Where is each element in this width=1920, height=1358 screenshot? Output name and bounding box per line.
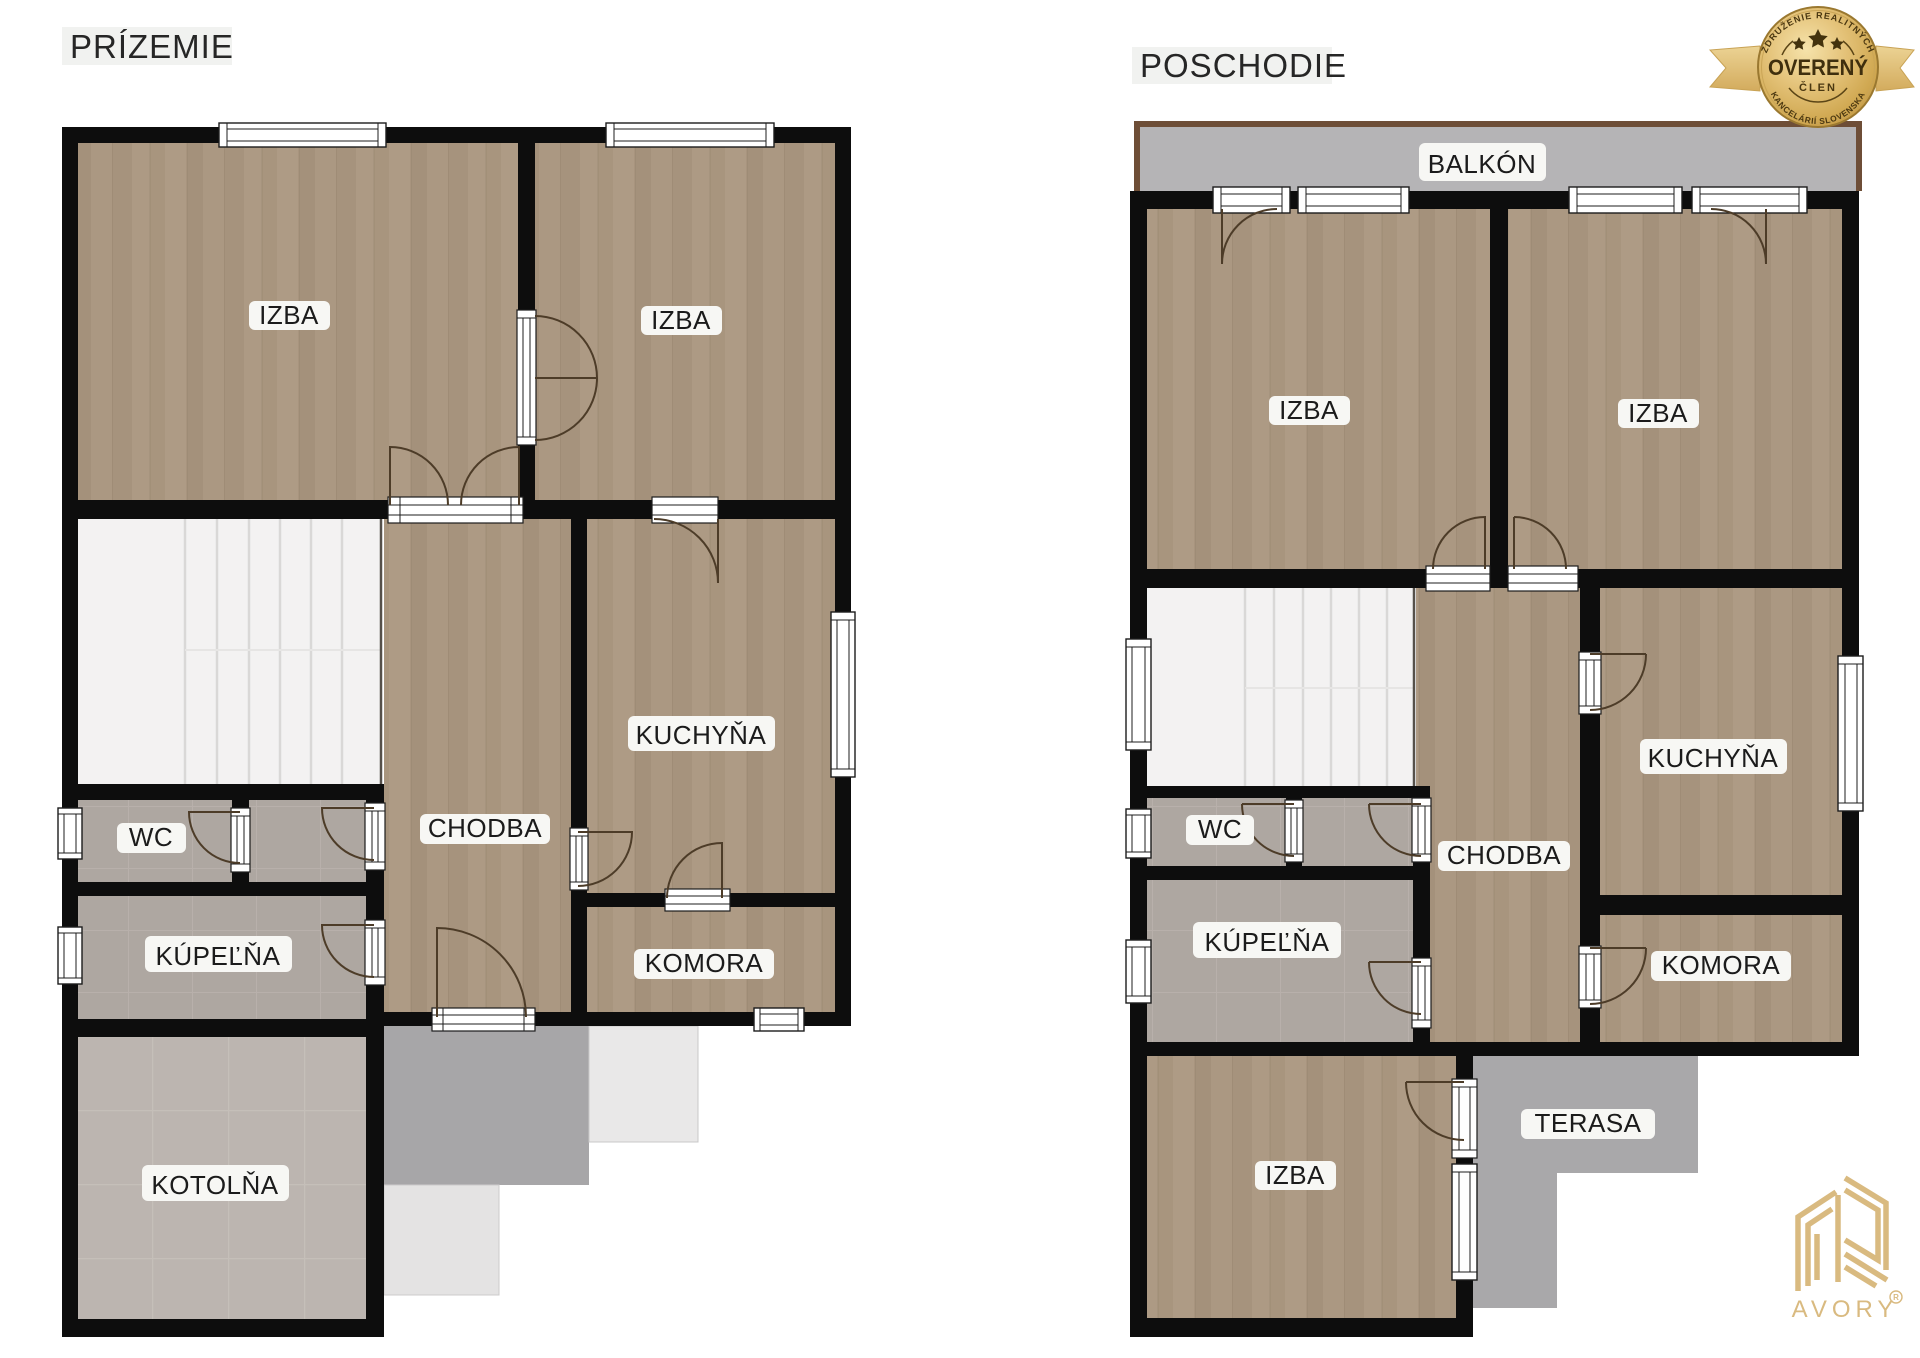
svg-text:WC: WC xyxy=(1198,814,1242,844)
svg-text:WC: WC xyxy=(129,822,173,852)
svg-text:KOMORA: KOMORA xyxy=(645,948,764,978)
svg-text:AVORY: AVORY xyxy=(1792,1296,1899,1323)
svg-text:TERASA: TERASA xyxy=(1534,1108,1641,1138)
svg-text:IZBA: IZBA xyxy=(259,300,319,330)
svg-text:KÚPEĽŇA: KÚPEĽŇA xyxy=(1205,927,1330,957)
svg-text:CHODBA: CHODBA xyxy=(428,813,542,843)
svg-text:KÚPEĽŇA: KÚPEĽŇA xyxy=(156,941,281,971)
svg-text:ČLEN: ČLEN xyxy=(1799,81,1837,94)
svg-text:IZBA: IZBA xyxy=(651,305,711,335)
svg-text:KOTOLŇA: KOTOLŇA xyxy=(151,1170,278,1200)
svg-text:OVERENÝ: OVERENÝ xyxy=(1768,55,1868,80)
svg-text:IZBA: IZBA xyxy=(1265,1160,1325,1190)
svg-text:KUCHYŇA: KUCHYŇA xyxy=(1648,743,1779,773)
svg-text:IZBA: IZBA xyxy=(1628,398,1688,428)
svg-text:R: R xyxy=(1893,1293,1899,1302)
svg-text:POSCHODIE: POSCHODIE xyxy=(1140,47,1347,84)
svg-text:CHODBA: CHODBA xyxy=(1447,840,1561,870)
svg-text:PRÍZEMIE: PRÍZEMIE xyxy=(70,28,234,65)
svg-text:KUCHYŇA: KUCHYŇA xyxy=(636,720,767,750)
svg-text:BALKÓN: BALKÓN xyxy=(1428,149,1537,179)
svg-text:IZBA: IZBA xyxy=(1279,395,1339,425)
svg-text:KOMORA: KOMORA xyxy=(1662,950,1781,980)
